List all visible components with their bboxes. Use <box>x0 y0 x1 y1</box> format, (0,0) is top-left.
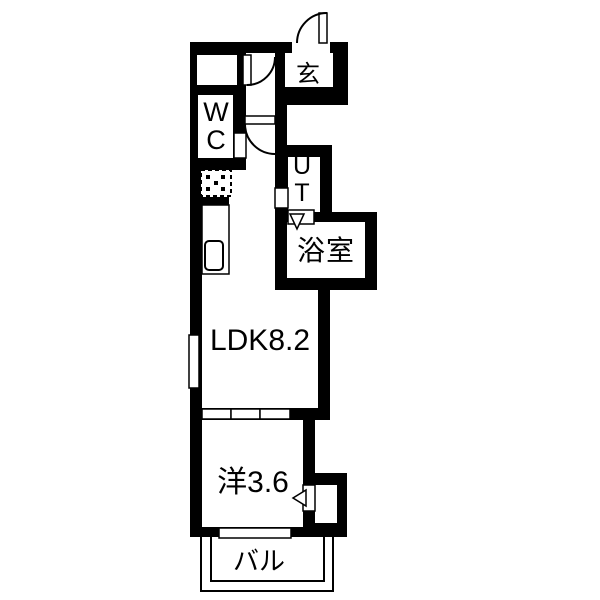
entrance-door-leaf <box>319 13 327 43</box>
hatch-dot <box>214 181 218 185</box>
bathroom-label: 浴室 <box>285 229 367 269</box>
hall-door-leaf <box>243 55 251 85</box>
western-room-label: 洋3.6 <box>202 457 304 501</box>
utility-label: U T <box>286 153 318 207</box>
entrance-storage-floor <box>197 55 237 85</box>
toilet-door <box>234 133 246 158</box>
kitchen-sink <box>205 241 223 270</box>
balcony-label: バル <box>211 541 307 578</box>
floor-plan-drawing <box>0 0 600 600</box>
sliding-door-panel <box>231 409 260 419</box>
balcony-window <box>219 528 291 538</box>
sliding-door-panel <box>260 409 290 419</box>
kitchen-door-leaf <box>245 116 275 124</box>
kitchen-counter-edge <box>190 197 229 205</box>
sliding-door-panel <box>202 409 231 419</box>
entrance-label: 玄 <box>283 54 333 89</box>
hatch-dot <box>221 187 225 191</box>
closet-floor <box>315 485 337 523</box>
ldk-window <box>189 335 199 388</box>
hatch-dot <box>221 175 225 179</box>
hatch-dot <box>206 187 210 191</box>
floor-plan: 玄 W C U T 浴室 LDK8.2 洋3.6 バル <box>0 0 600 600</box>
ldk-label: LDK8.2 <box>200 324 320 358</box>
toilet-label: W C <box>199 98 233 154</box>
hatch-dot <box>206 175 210 179</box>
